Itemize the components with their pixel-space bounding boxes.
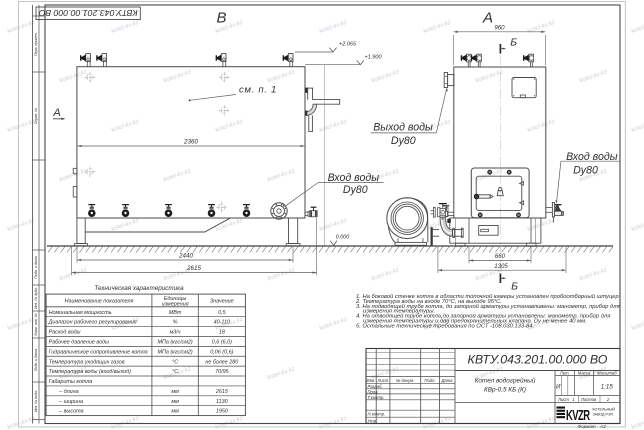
svg-text:Инв. № дубл.: Инв. № дубл. <box>34 287 38 309</box>
svg-text:Подп. и дата: Подп. и дата <box>34 349 38 372</box>
svg-text:мм: мм <box>171 389 179 395</box>
svg-text:Dy80: Dy80 <box>573 164 598 176</box>
svg-text:Выход воды: Выход воды <box>373 122 433 134</box>
svg-text:И: И <box>556 384 561 391</box>
svg-text:Б: Б <box>510 36 517 48</box>
svg-text:Гидравлическое сопротивление к: Гидравлическое сопротивление котла <box>49 349 148 355</box>
svg-text:КВр-0,5 КБ (К): КВр-0,5 КБ (К) <box>484 386 526 393</box>
svg-text:0,6 (6,0): 0,6 (6,0) <box>212 339 232 345</box>
svg-text:МПа (кгс/см2): МПа (кгс/см2) <box>157 349 192 355</box>
svg-text:Температура уходящих газов: Температура уходящих газов <box>49 359 125 365</box>
svg-text:KVZR: KVZR <box>566 408 590 424</box>
svg-text:КВТУ.043.201.00.000 ВО: КВТУ.043.201.00.000 ВО <box>468 353 608 367</box>
svg-text:В: В <box>216 9 226 26</box>
svg-text:– длина: – длина <box>58 389 78 395</box>
svg-text:Рабочее давление воды: Рабочее давление воды <box>49 339 109 345</box>
svg-text:2360: 2360 <box>183 139 199 146</box>
svg-text:0,06 (0,6): 0,06 (0,6) <box>210 349 233 355</box>
svg-text:Лит.: Лит. <box>559 371 570 376</box>
svg-text:40-110: 40-110 <box>214 320 230 326</box>
svg-text:Масса: Масса <box>578 371 591 376</box>
svg-text:0,5: 0,5 <box>218 310 226 316</box>
svg-text:мм: мм <box>171 409 179 415</box>
svg-text:МПа (кгс/см2): МПа (кгс/см2) <box>157 339 192 345</box>
svg-text:А3: А3 <box>599 424 606 429</box>
svg-text:1: 1 <box>572 397 574 402</box>
svg-text:°С: °С <box>172 359 178 365</box>
svg-text:0.000: 0.000 <box>336 234 350 240</box>
svg-text:%: % <box>173 320 178 326</box>
svg-text:2440: 2440 <box>178 253 194 260</box>
svg-text:660: 660 <box>495 253 506 260</box>
svg-text:Взам. инв. №: Взам. инв. № <box>34 313 38 335</box>
svg-text:Техническая характеристика: Техническая характеристика <box>94 285 184 292</box>
svg-text:КВТУ.043.201.00.000 ВО: КВТУ.043.201.00.000 ВО <box>38 8 137 18</box>
svg-text:Б: Б <box>511 281 518 293</box>
svg-text:Расход воды: Расход воды <box>49 330 81 336</box>
svg-text:1130: 1130 <box>216 399 228 405</box>
svg-text:Утв.: Утв. <box>368 418 378 423</box>
svg-text:Лист: Лист <box>377 378 389 383</box>
svg-text:Значение: Значение <box>210 299 234 305</box>
svg-text:Перв. примен.: Перв. примен. <box>34 32 38 56</box>
svg-text:Подп.: Подп. <box>424 378 435 383</box>
svg-text:Габариты котла: Габариты котла <box>49 379 93 385</box>
svg-text:Котел водогрейный: Котел водогрейный <box>475 376 536 384</box>
svg-text:Вход воды: Вход воды <box>328 172 380 184</box>
svg-text:МВт: МВт <box>169 310 182 316</box>
svg-text:м3/ч: м3/ч <box>170 330 181 336</box>
svg-text:Листов: Листов <box>580 397 597 402</box>
svg-text:Инв. № подл.: Инв. № подл. <box>34 390 38 412</box>
svg-text:5. Остальные технические треб: 5. Остальные технические требования по О… <box>356 323 534 329</box>
svg-text:Номинальная мощность: Номинальная мощность <box>49 310 112 316</box>
svg-text:– высота: – высота <box>58 409 83 415</box>
svg-text:°С: °С <box>172 369 178 375</box>
svg-text:А: А <box>482 9 493 26</box>
svg-text:Диапазон рабочего регулировани: Диапазон рабочего регулирования <box>48 320 137 326</box>
svg-text:измерения: измерения <box>162 301 189 307</box>
svg-text:№ докум.: № докум. <box>396 378 414 383</box>
svg-text:Наименование показателя: Наименование показателя <box>65 299 134 305</box>
svg-text:2615: 2615 <box>215 389 229 395</box>
svg-text:Т.контр.: Т.контр. <box>368 395 385 400</box>
svg-text:Изм.: Изм. <box>367 378 376 383</box>
svg-text:Формат: Формат <box>578 424 596 429</box>
svg-text:2615: 2615 <box>186 265 202 272</box>
svg-text:мм: мм <box>171 399 179 405</box>
svg-text:1:15: 1:15 <box>601 384 614 391</box>
svg-text:А: А <box>52 107 60 119</box>
svg-text:Подп. и дата: Подп. и дата <box>34 256 38 279</box>
svg-text:Н.контр.: Н.контр. <box>368 412 386 417</box>
svg-text:70/95: 70/95 <box>215 369 229 375</box>
svg-text:Масштаб: Масштаб <box>597 371 617 376</box>
svg-text:не более 280: не более 280 <box>205 359 238 365</box>
svg-text:1305: 1305 <box>494 263 508 270</box>
svg-text:Дата: Дата <box>440 378 453 383</box>
svg-text:Dy80: Dy80 <box>343 184 368 196</box>
svg-text:см. п. 1: см. п. 1 <box>239 85 277 96</box>
svg-text:– ширина: – ширина <box>58 399 83 405</box>
svg-text:1950: 1950 <box>216 409 228 415</box>
svg-text:ЗАВОД РЭП: ЗАВОД РЭП <box>593 413 614 417</box>
svg-text:Пров.: Пров. <box>368 389 379 394</box>
svg-text:Температура воды (вход/выход): Температура воды (вход/выход) <box>49 369 132 375</box>
svg-text:Лист: Лист <box>557 397 569 402</box>
svg-text:+1.900: +1.900 <box>364 54 382 60</box>
svg-text:Справ. №: Справ. № <box>34 108 38 124</box>
svg-text:18: 18 <box>219 330 225 336</box>
svg-text:960: 960 <box>494 25 505 32</box>
svg-text:+2.065: +2.065 <box>339 41 357 47</box>
svg-text:КОТЕЛЬНЫЙ: КОТЕЛЬНЫЙ <box>593 408 616 412</box>
svg-text:Dy80: Dy80 <box>391 135 416 147</box>
